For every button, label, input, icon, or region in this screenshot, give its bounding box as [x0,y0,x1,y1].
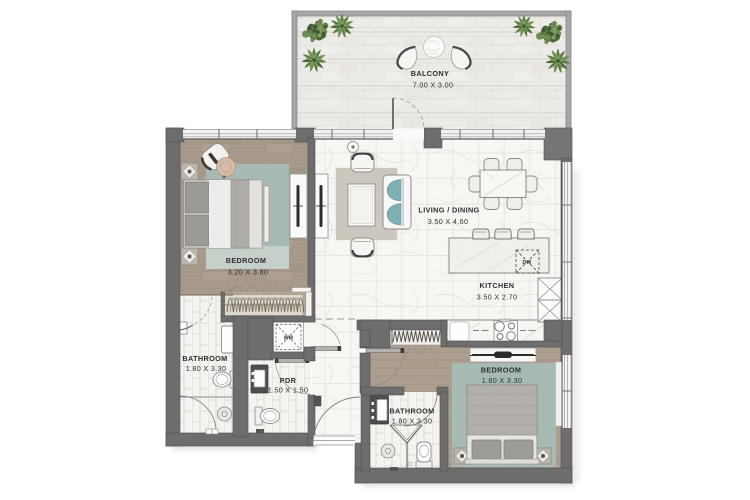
svg-text:1.80 X 3.30: 1.80 X 3.30 [392,417,433,426]
svg-text:WM: WM [284,336,293,342]
svg-text:PDR: PDR [280,376,297,385]
svg-text:LIVING / DINING: LIVING / DINING [418,206,479,215]
svg-text:1.50 X 1.50: 1.50 X 1.50 [268,386,309,395]
svg-text:BALCONY: BALCONY [411,69,450,78]
svg-text:BATHROOM: BATHROOM [182,354,227,363]
svg-text:1.80 X 3.30: 1.80 X 3.30 [482,376,523,385]
svg-text:1.80 X 3.30: 1.80 X 3.30 [186,364,227,373]
svg-text:BEDROOM: BEDROOM [226,256,267,265]
svg-text:3.20 X 3.80: 3.20 X 3.80 [228,268,269,277]
svg-text:KITCHEN: KITCHEN [480,281,515,290]
svg-text:BEDROOM: BEDROOM [481,366,522,375]
svg-text:7.00 X 3.00: 7.00 X 3.00 [413,81,454,90]
svg-text:BATHROOM: BATHROOM [389,407,434,416]
svg-text:3.50 X 4.60: 3.50 X 4.60 [428,217,469,226]
svg-text:3.50 X 2.70: 3.50 X 2.70 [477,293,518,302]
svg-text:DW: DW [523,260,532,266]
